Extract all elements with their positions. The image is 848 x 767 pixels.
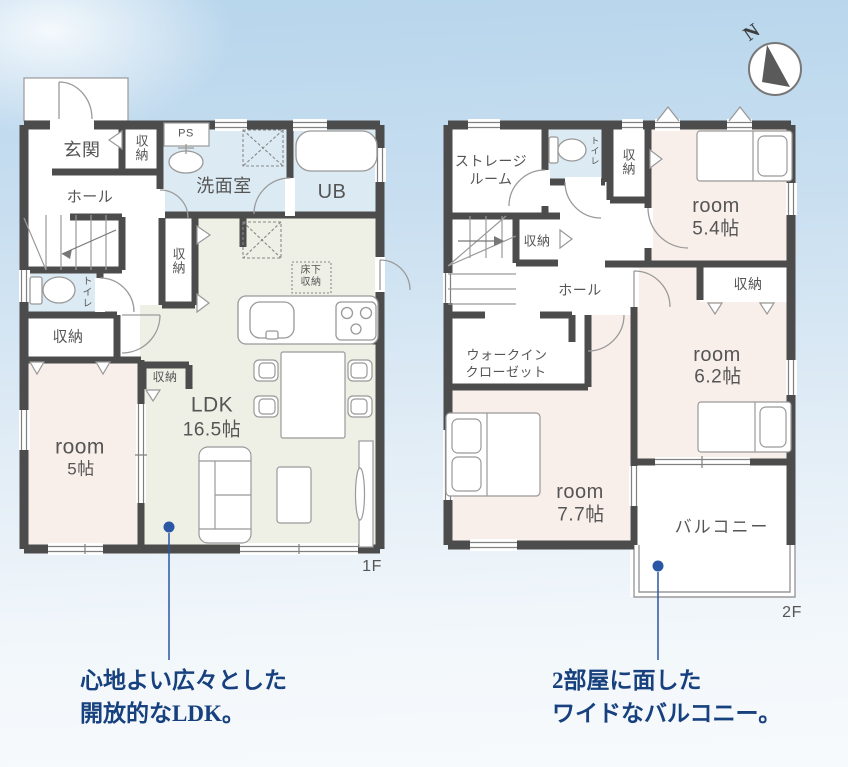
room-label-room62: room <box>693 345 741 365</box>
room-label-ps: PS <box>178 129 194 140</box>
bed-icon-77 <box>446 413 540 496</box>
room-label-hall-2f: ホール <box>558 283 602 297</box>
room-label-room54: room <box>692 196 740 216</box>
toilet-icon-2f <box>549 137 586 163</box>
room-label-toilet-closet: 収納 <box>52 330 83 345</box>
room-label-hall-closet: 収納 <box>172 247 185 275</box>
bed-icon-54 <box>697 131 792 181</box>
room-label-ub: UB <box>318 182 347 202</box>
caption-ldk-line2: 開放的なLDK。 <box>80 697 287 730</box>
coffee-table-icon <box>277 467 311 523</box>
room-label-ldk-closet: 収納 <box>152 371 177 383</box>
room-label-genkan-closet: 収納 <box>135 134 148 162</box>
room-label-storage-1: ストレージ <box>455 154 527 168</box>
toilet-icon-1f <box>30 277 75 304</box>
room-label-closet54: 収納 <box>734 277 763 291</box>
room-label-ldk-size: 16.5帖 <box>183 421 241 440</box>
dining-table-icon <box>281 352 345 438</box>
entrance-porch <box>24 78 128 121</box>
room-label-ldk: LDK <box>191 395 233 416</box>
tv-icon <box>356 468 365 520</box>
room-label-balcony: バルコニー <box>675 519 770 536</box>
room-label-room77: room <box>556 482 604 502</box>
caption-balcony-line2: ワイドなバルコニー。 <box>552 697 781 730</box>
room-label-genkan: 玄関 <box>64 141 101 159</box>
balcony-callout-dot <box>653 561 664 572</box>
window-chevron-icon <box>657 107 751 121</box>
ldk-callout-dot <box>164 522 175 533</box>
room-label-hall-1f: ホール <box>67 190 114 205</box>
kitchen-counter-icon <box>238 296 378 344</box>
room-label-room5: room <box>55 437 105 458</box>
room-label-underfloor-1: 床下 <box>301 266 322 276</box>
caption-ldk-line1: 心地よい広々とした <box>80 664 287 697</box>
bathtub-icon <box>296 131 377 171</box>
floorplan-page: 玄関 収納 PS 洗面室 UB ホール トイレ 収納 収納 収納 床下 収納 L… <box>0 0 848 767</box>
room-label-wic-2: クローゼット <box>465 366 546 379</box>
room-label-underfloor-2: 収納 <box>301 278 322 288</box>
bed-icon-62 <box>698 402 791 452</box>
room-label-wic-1: ウォークイン <box>466 349 547 362</box>
room-label-washroom: 洗面室 <box>196 177 252 195</box>
sofa-icon <box>199 447 251 543</box>
room-label-room62-size: 6.2帖 <box>694 368 741 387</box>
floor-label-1f: 1F <box>362 559 382 575</box>
caption-ldk: 心地よい広々とした 開放的なLDK。 <box>80 664 287 730</box>
caption-balcony-line1: 2部屋に面した <box>552 664 781 697</box>
room-label-room77-size: 7.7帖 <box>557 506 604 525</box>
caption-balcony: 2部屋に面した ワイドなバルコニー。 <box>552 664 781 730</box>
room-label-toilet-2f: トイレ <box>590 136 599 166</box>
room-label-room5-size: 5帖 <box>67 461 94 478</box>
room-label-closet-top: 収納 <box>622 148 635 176</box>
compass-icon <box>749 43 801 95</box>
room-label-room54-size: 5.4帖 <box>692 220 739 239</box>
room-label-storage-2: ルーム <box>469 172 512 186</box>
room-label-closet-mid: 収納 <box>523 235 550 248</box>
floor-label-2f: 2F <box>782 605 802 621</box>
room-label-toilet-1f: トイレ <box>80 276 90 309</box>
